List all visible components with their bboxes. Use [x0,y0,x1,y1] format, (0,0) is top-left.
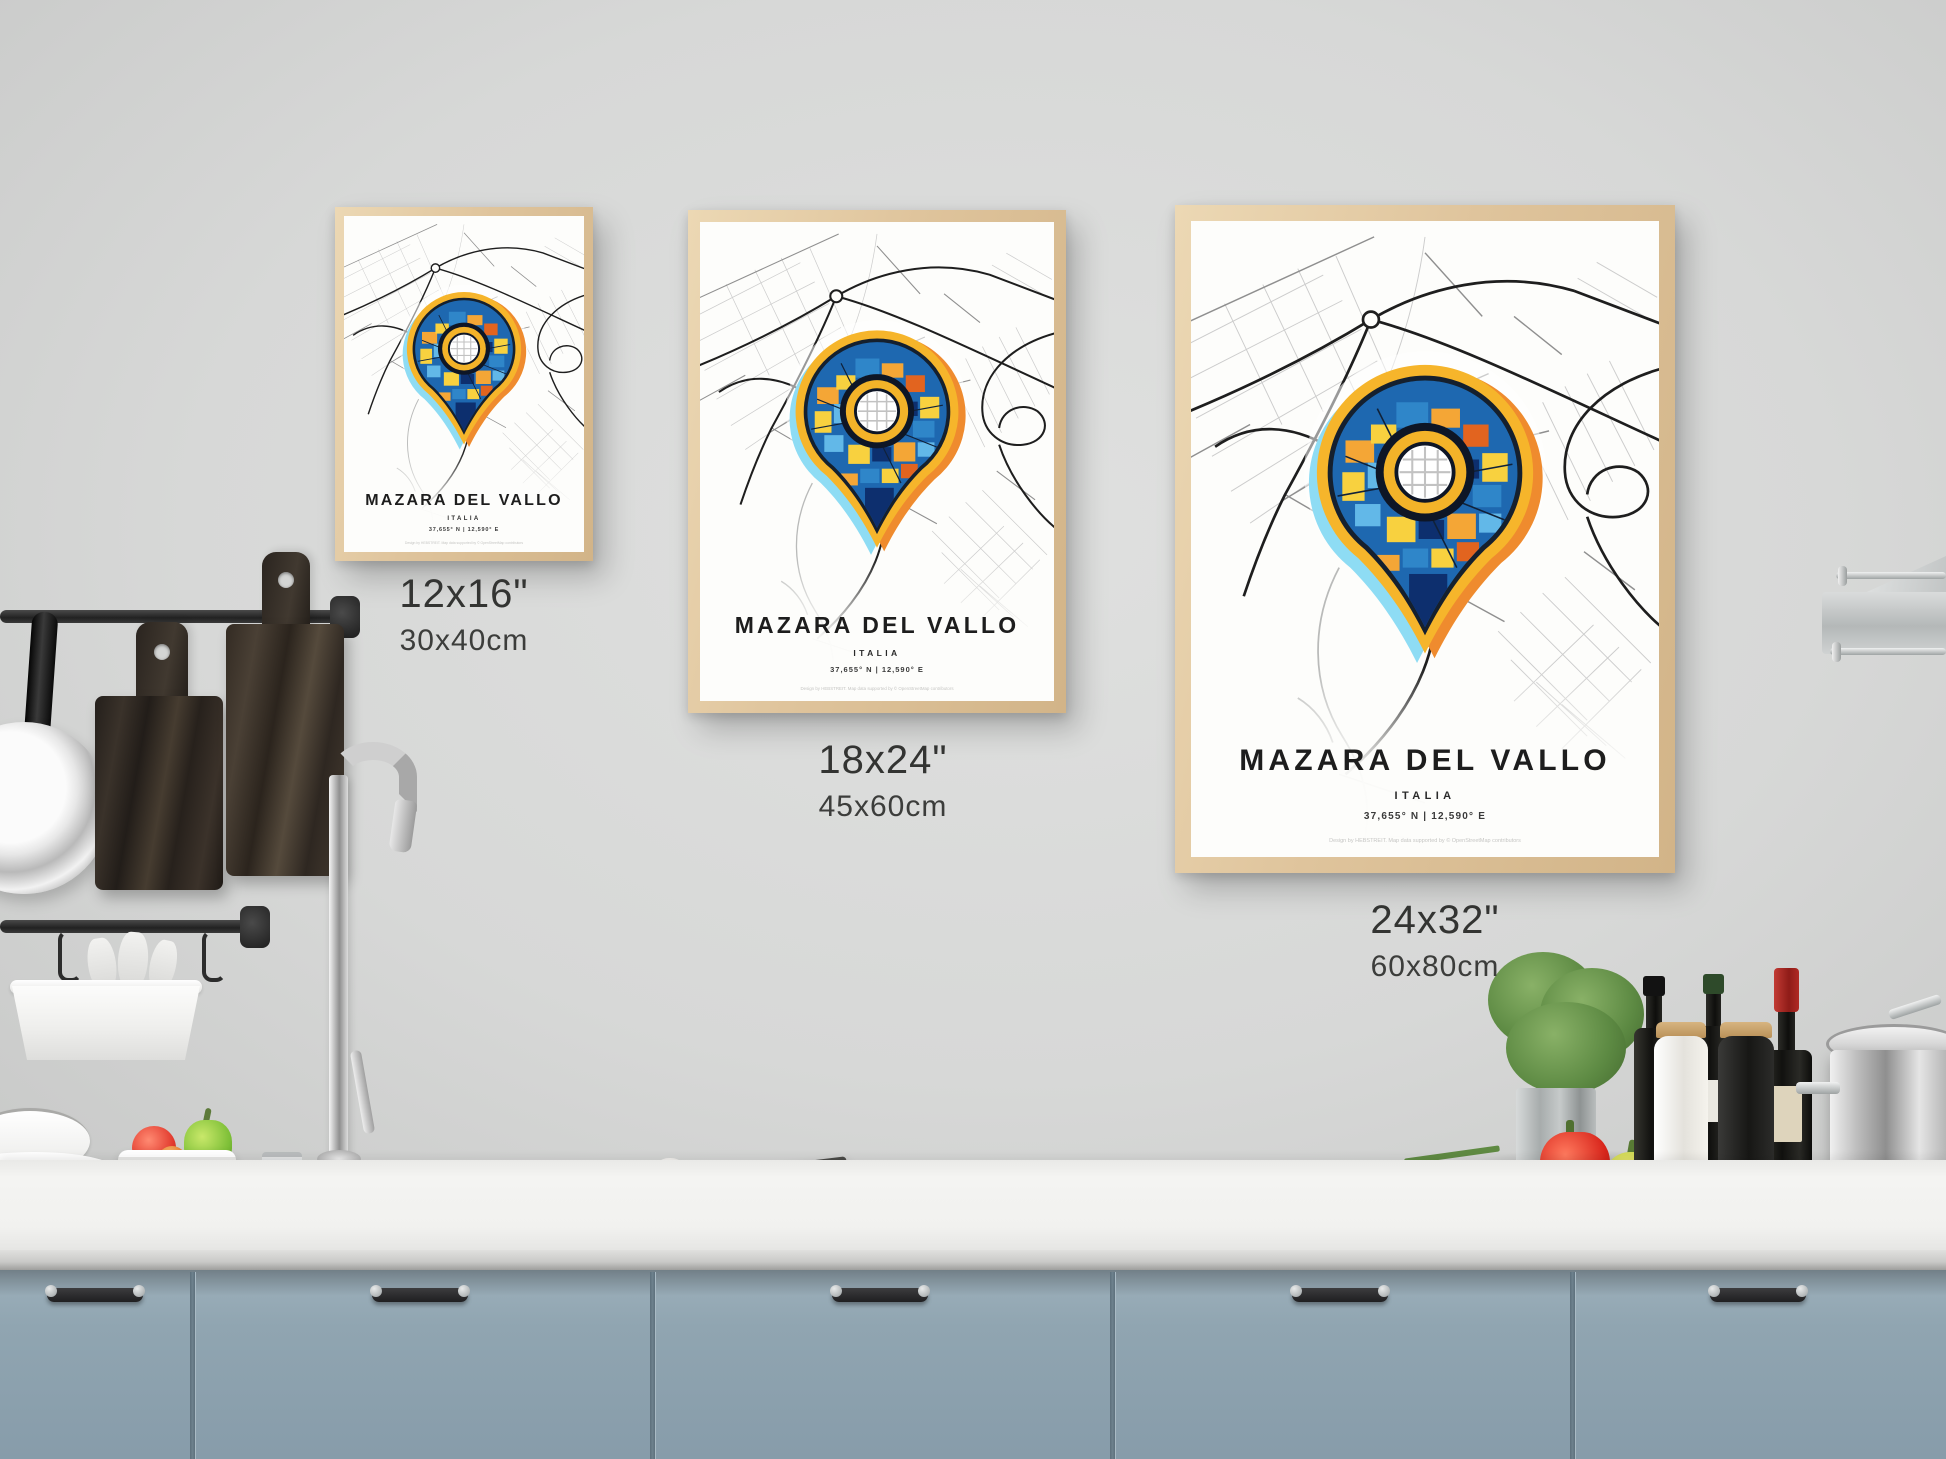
kitchen-mockup-scene: MAZARA DEL VALLO ITALIA 37,655° N | 12,5… [0,0,1946,1459]
drawer-handle[interactable] [1292,1288,1388,1302]
poster-large-24x32: MAZARA DEL VALLO ITALIA 37,655° N | 12,5… [1175,205,1675,873]
size-cm: 45x60cm [733,790,1033,824]
cabinet-divider [1570,1272,1575,1459]
drawer-handle[interactable] [372,1288,468,1302]
white-grinder [1654,1036,1708,1170]
poster-small-paper: MAZARA DEL VALLO ITALIA 37,655° N | 12,5… [344,216,584,552]
size-cm: 30x40cm [314,624,614,658]
poster-title: MAZARA DEL VALLO [735,612,1020,639]
size-label-large: 24x32" 60x80cm [1285,898,1585,984]
cutting-board-large [226,624,344,876]
drawer-handle[interactable] [832,1288,928,1302]
black-grinder [1718,1036,1774,1172]
drawer-handle[interactable] [1710,1288,1806,1302]
wine-bottle-capsule [1774,968,1799,1012]
poster-caption: MAZARA DEL VALLO ITALIA 37,655° N | 12,5… [1191,744,1659,844]
countertop [0,1160,1946,1256]
poster-medium-18x24: MAZARA DEL VALLO ITALIA 37,655° N | 12,5… [688,210,1066,713]
poster-subtitle: ITALIA [853,648,900,658]
counter-front-edge [0,1250,1946,1270]
hood-rail-post [1832,642,1841,662]
herb-plant-foliage [1506,1002,1626,1094]
poster-large-paper: MAZARA DEL VALLO ITALIA 37,655° N | 12,5… [1191,221,1659,857]
cutting-board-large-hole [278,572,294,588]
poster-credit: Design by HEBSTREIT. Map data supported … [1329,838,1521,844]
poster-title: MAZARA DEL VALLO [365,492,563,510]
cabinet-row [0,1270,1946,1459]
poster-credit: Design by HEBSTREIT. Map data supported … [405,541,523,545]
rail-end-cap-lower [240,906,270,948]
hood-rail-top [1836,572,1946,579]
poster-coordinates: 37,655° N | 12,590° E [1364,811,1486,822]
cabinet-divider [650,1272,655,1459]
poster-subtitle: ITALIA [447,516,480,522]
size-label-small: 12x16" 30x40cm [314,572,614,658]
poster-coordinates: 37,655° N | 12,590° E [830,665,924,674]
size-inches: 12x16" [314,572,614,617]
cabinet-top-shadow [0,1270,1946,1296]
size-inches: 24x32" [1285,898,1585,943]
poster-coordinates: 37,655° N | 12,590° E [429,527,499,533]
hood-rail-bottom [1830,648,1946,655]
faucet-stem[interactable] [329,775,348,1165]
size-label-medium: 18x24" 45x60cm [733,738,1033,824]
s-hook-left [58,930,82,982]
poster-caption: MAZARA DEL VALLO ITALIA 37,655° N | 12,5… [344,492,584,545]
s-hook-right [202,930,226,982]
cabinet-divider [190,1272,195,1459]
size-inches: 18x24" [733,738,1033,783]
oil-bottle-1-cap [1643,976,1665,996]
cutting-board-small-handle [136,622,188,706]
pot-side-handle[interactable] [1796,1082,1840,1094]
cutting-board-large-handle [262,552,310,632]
cutting-board-small [95,696,223,890]
hood-rail-post [1838,566,1847,586]
poster-small-12x16: MAZARA DEL VALLO ITALIA 37,655° N | 12,5… [335,207,593,561]
poster-title: MAZARA DEL VALLO [1239,744,1611,778]
poster-credit: Design by HEBSTREIT. Map data supported … [800,686,953,691]
wine-bottle-label [1772,1086,1802,1142]
utensil-bucket [12,986,200,1060]
poster-medium-paper: MAZARA DEL VALLO ITALIA 37,655° N | 12,5… [700,222,1054,701]
size-cm: 60x80cm [1285,950,1585,984]
poster-subtitle: ITALIA [1394,790,1455,802]
poster-caption: MAZARA DEL VALLO ITALIA 37,655° N | 12,5… [700,612,1054,691]
drawer-handle[interactable] [47,1288,143,1302]
cabinet-divider [1110,1272,1115,1459]
cutting-board-small-hole [154,644,170,660]
oil-bottle-2-cap [1703,974,1724,994]
